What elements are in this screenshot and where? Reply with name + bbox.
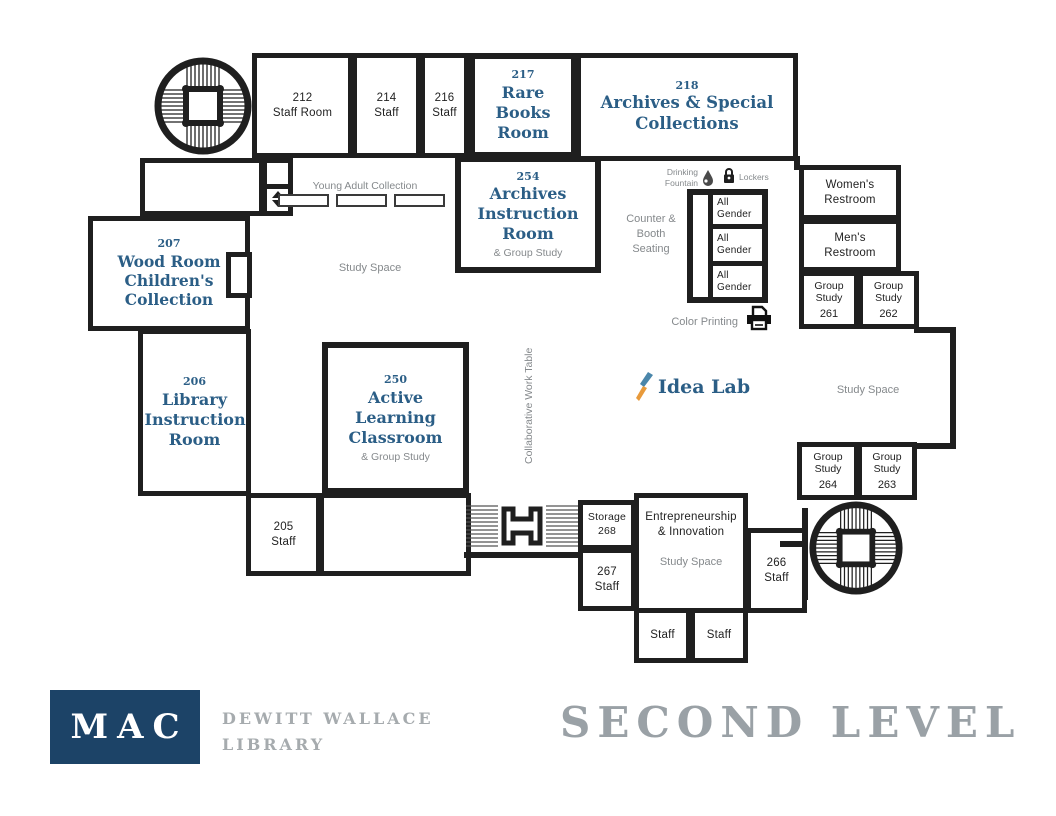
level-title: SECOND LEVEL	[560, 698, 1016, 747]
group-study-262-label: Group Study	[869, 280, 909, 304]
stairs-south-icon	[464, 502, 580, 554]
room-205-staff: 205 Staff	[246, 493, 321, 576]
group-study-261-number: 261	[820, 308, 838, 320]
unlabeled-room	[319, 493, 471, 576]
collaborative-work-table-label: Collaborative Work Table	[517, 333, 541, 478]
group-study-264: Group Study 264	[797, 442, 859, 500]
color-printing-label: Color Printing	[646, 315, 738, 330]
group-study-264-label: Group Study	[808, 451, 848, 475]
room-214-number: 214	[377, 91, 397, 106]
room-266-label: Staff	[764, 571, 788, 586]
womens-restroom-label: Women's Restroom	[815, 178, 885, 208]
wall-segment	[464, 552, 582, 558]
room-267-staff: 267 Staff	[578, 548, 636, 611]
room-267-label: Staff	[595, 580, 619, 595]
all-gender-room: All Gender	[713, 267, 763, 297]
idea-lab-spark-icon	[636, 372, 654, 402]
study-space-main-label: Study Space	[310, 261, 430, 276]
wall-segment	[950, 327, 956, 449]
idea-lab-logo: Idea Lab	[636, 372, 750, 402]
counter-booth-label: Counter & Booth Seating	[618, 212, 684, 257]
all-gender-label: All Gender	[717, 270, 759, 294]
drinking-fountain-icon	[701, 169, 715, 187]
idea-lab-label: Idea Lab	[658, 376, 750, 398]
bookshelf	[394, 194, 445, 207]
room-207-number: 207	[158, 237, 181, 250]
room-214-staff: 214 Staff	[352, 53, 421, 158]
mens-restroom-label: Men's Restroom	[815, 231, 885, 261]
entrepreneurship-label: Entrepreneurship & Innovation	[641, 510, 741, 540]
womens-restroom: Women's Restroom	[799, 165, 901, 220]
library-name: DEWITT WALLACE LIBRARY	[222, 706, 434, 757]
stairwell-nw-icon	[153, 56, 253, 156]
room-212-staff: 212 Staff Room	[252, 53, 353, 158]
drinking-fountain-label: Drinking Fountain	[650, 167, 698, 190]
room-250-sub-label: & Group Study	[361, 451, 430, 463]
group-study-262: Group Study 262	[858, 271, 919, 329]
staff-room-bottom-left: Staff	[634, 608, 691, 663]
library-name-line1: DEWITT WALLACE	[222, 706, 434, 732]
all-gender-label: All Gender	[717, 197, 759, 221]
lockers-icon	[722, 167, 736, 184]
room-218-label: Archives & Special Collections	[595, 93, 780, 134]
room-212-label: Staff Room	[273, 106, 332, 121]
room-254-sub-label: & Group Study	[494, 247, 563, 259]
entrepreneurship-sub-label: Study Space	[660, 556, 722, 568]
room-206-label: Library Instruction Room	[145, 390, 245, 450]
room-218-number: 218	[676, 79, 699, 92]
printer-icon	[744, 304, 774, 332]
room-254-label: Archives Instruction Room	[473, 184, 583, 244]
room-207-closet	[226, 252, 252, 298]
room-217-label: Rare Books Room	[484, 83, 562, 143]
room-214-label: Staff	[374, 106, 398, 121]
room-267-number: 267	[597, 565, 617, 580]
room-212-number: 212	[293, 91, 313, 106]
room-250-number: 250	[384, 373, 407, 386]
young-adult-collection-label: Young Adult Collection	[280, 179, 450, 193]
bookshelf	[278, 194, 329, 207]
library-name-line2: LIBRARY	[222, 732, 434, 758]
group-study-261-label: Group Study	[809, 280, 849, 304]
bookshelf	[336, 194, 387, 207]
room-250-active-learning: 250 Active Learning Classroom & Group St…	[322, 342, 469, 494]
floor-plan: 212 Staff Room 214 Staff 216 Staff 217 R…	[0, 0, 1056, 816]
mac-logo-text: MAC	[70, 707, 188, 747]
room-216-staff: 216 Staff	[420, 53, 469, 158]
staff-room-bottom-right: Staff	[690, 608, 748, 663]
group-study-263-number: 263	[878, 479, 896, 491]
staff-room-label: Staff	[707, 628, 731, 643]
all-gender-room: All Gender	[713, 230, 763, 260]
elevator-lobby	[140, 158, 264, 216]
all-gender-divider	[712, 261, 763, 266]
room-268-storage: Storage 268	[578, 500, 636, 550]
room-254-number: 254	[517, 170, 540, 183]
mac-logo: MAC	[50, 690, 200, 764]
all-gender-divider	[712, 224, 763, 229]
room-217-number: 217	[512, 68, 535, 81]
group-study-261: Group Study 261	[799, 271, 859, 329]
group-study-264-number: 264	[819, 479, 837, 491]
all-gender-label: All Gender	[717, 233, 759, 257]
room-216-number: 216	[435, 91, 455, 106]
room-216-label: Staff	[432, 106, 456, 121]
all-gender-room: All Gender	[713, 195, 763, 223]
group-study-263: Group Study 263	[857, 442, 917, 500]
mens-restroom: Men's Restroom	[799, 219, 901, 272]
room-218-archives-special: 218 Archives & Special Collections	[576, 53, 798, 161]
room-206-library-instruction: 206 Library Instruction Room	[138, 329, 251, 496]
staff-room-label: Staff	[650, 628, 674, 643]
room-206-number: 206	[183, 375, 206, 388]
room-207-label: Wood Room Children's Collection	[109, 252, 229, 310]
room-217-rare-books: 217 Rare Books Room	[469, 53, 577, 158]
room-254-archives-instruction: 254 Archives Instruction Room & Group St…	[455, 156, 601, 273]
room-268-number: 268	[598, 525, 616, 539]
group-study-263-label: Group Study	[867, 451, 907, 475]
wall-segment	[780, 541, 808, 547]
room-205-label: Staff	[271, 535, 295, 550]
room-268-label: Storage	[588, 511, 626, 525]
lockers-label: Lockers	[739, 172, 785, 183]
room-250-label: Active Learning Classroom	[341, 388, 451, 448]
room-266-number: 266	[767, 556, 787, 571]
room-205-number: 205	[274, 520, 294, 535]
study-space-right-label: Study Space	[818, 383, 918, 398]
group-study-262-number: 262	[879, 308, 897, 320]
stairwell-se-icon	[808, 500, 904, 596]
